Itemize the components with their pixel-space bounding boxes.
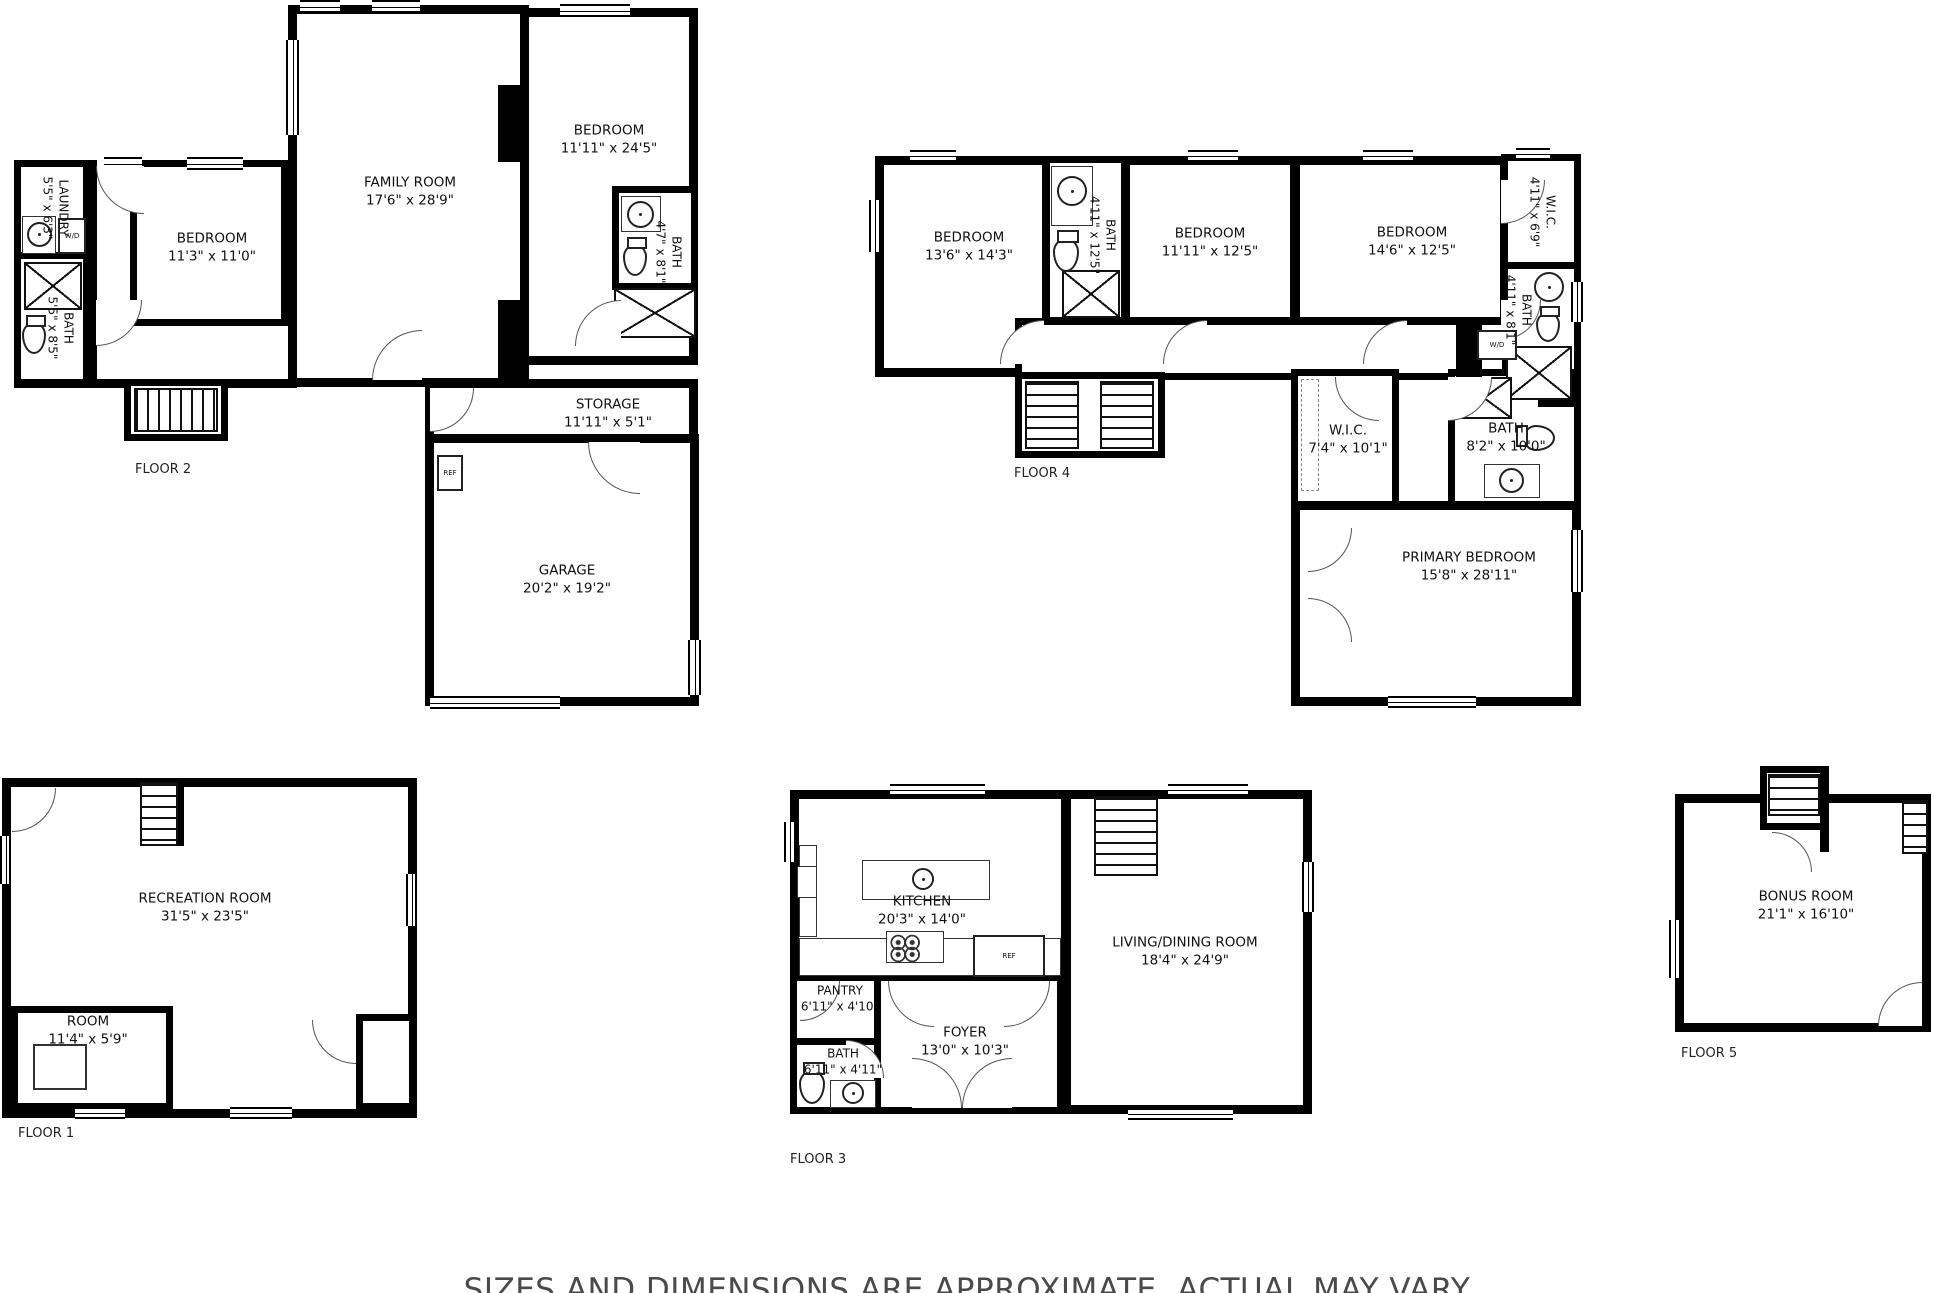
stairs <box>1768 774 1820 816</box>
stairs <box>1094 796 1158 876</box>
room-label-recreation: RECREATION ROOM 31'5" x 23'5" <box>139 890 272 925</box>
utility-box <box>33 1044 87 1090</box>
window <box>0 836 11 884</box>
window <box>1571 282 1583 322</box>
stairs <box>140 782 178 846</box>
room-label-storage: STORAGE 11'11" x 5'1" <box>564 396 652 431</box>
garage-door <box>430 696 560 709</box>
room-label-bath: BATH 4'7" x 8'1" <box>652 221 683 284</box>
window <box>1363 150 1413 162</box>
window <box>1128 1108 1233 1120</box>
room-label-bath: BATH 8'2" x 10'0" <box>1466 420 1545 455</box>
door-arc <box>96 166 144 214</box>
room-label-living: LIVING/DINING ROOM 18'4" x 24'9" <box>1112 934 1257 969</box>
room-label-laundry: LAUNDRY 5'5" x 6'3" <box>39 177 70 240</box>
hall-f4 <box>1015 318 1509 380</box>
sink-icon <box>912 868 934 890</box>
stairs <box>1025 381 1079 449</box>
stairs <box>1100 381 1154 449</box>
window <box>406 874 417 926</box>
room-label-bath: BATH 4'11" x 12'5" <box>1086 196 1117 274</box>
room-label-foyer: FOYER 13'0" x 10'3" <box>921 1024 1009 1059</box>
sink-icon <box>1499 468 1524 493</box>
wall <box>498 300 528 380</box>
window <box>910 150 956 162</box>
sink-icon <box>842 1082 864 1104</box>
window <box>869 200 881 252</box>
room-label-bedroom: BEDROOM 14'6" x 12'5" <box>1368 224 1456 259</box>
floor-label-4: FLOOR 4 <box>1014 466 1070 481</box>
sink-icon <box>1057 176 1087 206</box>
floorplan-canvas: W/D REF FAMILY ROOM 17'6" x 28'9" BEDROO… <box>0 0 1934 1293</box>
room-label-bedroom: BEDROOM 11'11" x 12'5" <box>1162 225 1259 260</box>
room-label-bath: BATH 5'5" x 8'5" <box>44 297 75 360</box>
stove-icon <box>886 931 944 963</box>
kitchen-sink <box>797 866 817 898</box>
floor-label-5: FLOOR 5 <box>1681 1046 1737 1061</box>
floor-label-3: FLOOR 3 <box>790 1152 846 1167</box>
floor-label-2: FLOOR 2 <box>135 462 191 477</box>
sink-icon <box>627 201 654 228</box>
window <box>1669 920 1681 978</box>
refrigerator: REF <box>437 455 463 491</box>
window <box>1571 530 1583 592</box>
refrigerator: REF <box>973 935 1045 977</box>
shower <box>614 288 696 338</box>
wall <box>88 160 97 388</box>
window <box>1302 862 1314 912</box>
window <box>286 40 299 135</box>
closet <box>356 1014 416 1110</box>
room-label-primary: PRIMARY BEDROOM 15'8" x 28'11" <box>1402 549 1536 584</box>
room-label-bedroom: BEDROOM 11'11" x 24'5" <box>561 122 658 157</box>
room-label-bedroom: BEDROOM 11'3" x 11'0" <box>168 230 256 265</box>
window <box>300 0 340 13</box>
sink-icon <box>1534 272 1564 302</box>
disclaimer-text: SIZES AND DIMENSIONS ARE APPROXIMATE, AC… <box>0 1272 1934 1293</box>
room-label-room: ROOM 11'4" x 5'9" <box>48 1013 127 1048</box>
window <box>1388 696 1476 708</box>
window <box>688 640 701 695</box>
window <box>784 822 796 862</box>
room-label-bedroom: BEDROOM 13'6" x 14'3" <box>925 229 1013 264</box>
wall <box>1820 766 1829 852</box>
wall <box>498 85 528 162</box>
room-label-wic: W.I.C. 4'11" x 6'9" <box>1526 177 1557 248</box>
shower <box>1062 270 1120 318</box>
window <box>187 157 243 170</box>
stairs <box>1902 800 1928 854</box>
room-label-pantry: PANTRY 6'11" x 4'10" <box>801 983 879 1014</box>
room-label-bath: BATH 6'11" x 4'11" <box>804 1046 882 1077</box>
room-label-bath: BATH 4'11" x 8'1" <box>1502 275 1533 346</box>
window <box>75 1107 125 1119</box>
window <box>230 1107 292 1119</box>
door-arc <box>96 300 142 346</box>
floor-label-1: FLOOR 1 <box>18 1126 74 1141</box>
room-label-bonus: BONUS ROOM 21'1" x 16'10" <box>1758 888 1855 923</box>
room-label-kitchen: KITCHEN 20'3" x 14'0" <box>878 893 966 928</box>
window <box>1188 150 1238 162</box>
window <box>1516 148 1550 160</box>
window <box>890 784 985 796</box>
window <box>1168 784 1248 796</box>
stairs <box>134 388 218 432</box>
room-label-wic: W.I.C. 7'4" x 10'1" <box>1308 422 1387 457</box>
window <box>560 4 630 17</box>
room-label-garage: GARAGE 20'2" x 19'2" <box>523 562 611 597</box>
room-label-family: FAMILY ROOM 17'6" x 28'9" <box>364 174 456 209</box>
window <box>372 0 420 13</box>
